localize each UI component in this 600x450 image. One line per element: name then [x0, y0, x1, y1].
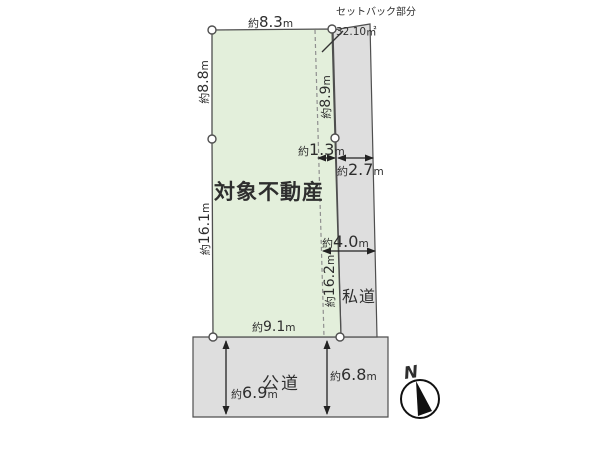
vertex-marker [336, 333, 344, 341]
dim-prefix: 約 [199, 244, 212, 255]
vertex-marker [328, 25, 336, 33]
setback-area-label: 32.10㎡ [336, 24, 377, 39]
dim-prefix: 約 [198, 93, 211, 104]
dim-prefix: 約 [298, 145, 309, 158]
dim-unit: m [283, 18, 293, 30]
compass [401, 380, 439, 418]
dim-value: 16.1 [197, 213, 213, 244]
vertex-marker [208, 26, 216, 34]
dim-value: 6.9 [242, 383, 267, 402]
dim-prefix: 約 [322, 237, 333, 250]
dim-unit: m [373, 166, 383, 178]
dim-prefix: 約 [320, 108, 333, 119]
dim-prefix: 約 [337, 165, 348, 178]
dim-unit: m [334, 146, 344, 158]
dimension-top-width: 約8.3m [248, 12, 293, 34]
dim-value: 6.8 [341, 365, 366, 384]
dimension-right-upper: 約8.9m [316, 67, 338, 127]
vertex-marker [208, 135, 216, 143]
dimension-private-road-width: 約2.7m [337, 160, 384, 182]
dim-value: 16.2 [322, 265, 338, 296]
dim-unit: m [267, 389, 277, 401]
dim-value: 4.0 [333, 232, 358, 251]
setback-caption: セットバック部分 [336, 3, 416, 18]
dim-value: 9.1 [263, 319, 285, 335]
site-plan-diagram: セットバック部分 32.10㎡ 約8.3m 約8.8m 約16.1m 約8.9m… [0, 0, 600, 450]
dimension-public-road-width-right: 約6.8m [330, 365, 377, 387]
private-road-label: 私道 [342, 283, 376, 307]
dim-unit: m [200, 203, 212, 213]
dim-prefix: 約 [324, 296, 337, 307]
dim-unit: m [366, 371, 376, 383]
dimension-public-road-width-left: 約6.9m [231, 383, 278, 405]
dimension-total-road-width: 約4.0m [322, 232, 369, 254]
dim-unit: m [358, 238, 368, 250]
dim-value: 2.7 [348, 160, 373, 179]
site-plan-shapes [0, 0, 600, 450]
dim-value: 8.3 [259, 13, 283, 31]
dim-prefix: 約 [252, 321, 263, 334]
dim-prefix: 約 [330, 370, 341, 383]
dim-value: 8.9 [318, 85, 334, 107]
dimension-bottom-width: 約9.1m [252, 317, 296, 338]
dim-value: 1.3 [309, 140, 334, 159]
dim-unit: m [321, 75, 333, 85]
dim-unit: m [285, 322, 295, 334]
compass-north-label: N [403, 362, 420, 384]
dimension-right-lower: 約16.2m [320, 246, 342, 316]
target-property-title: 対象不動産 [214, 176, 324, 206]
dimension-left-upper: 約8.8m [194, 52, 216, 112]
dim-value: 8.8 [196, 70, 212, 92]
dim-unit: m [199, 60, 211, 70]
dimension-setback-width: 約1.3m [298, 140, 345, 162]
dim-unit: m [325, 255, 337, 265]
dim-prefix: 約 [231, 388, 242, 401]
dim-prefix: 約 [248, 17, 259, 30]
vertex-marker [209, 333, 217, 341]
